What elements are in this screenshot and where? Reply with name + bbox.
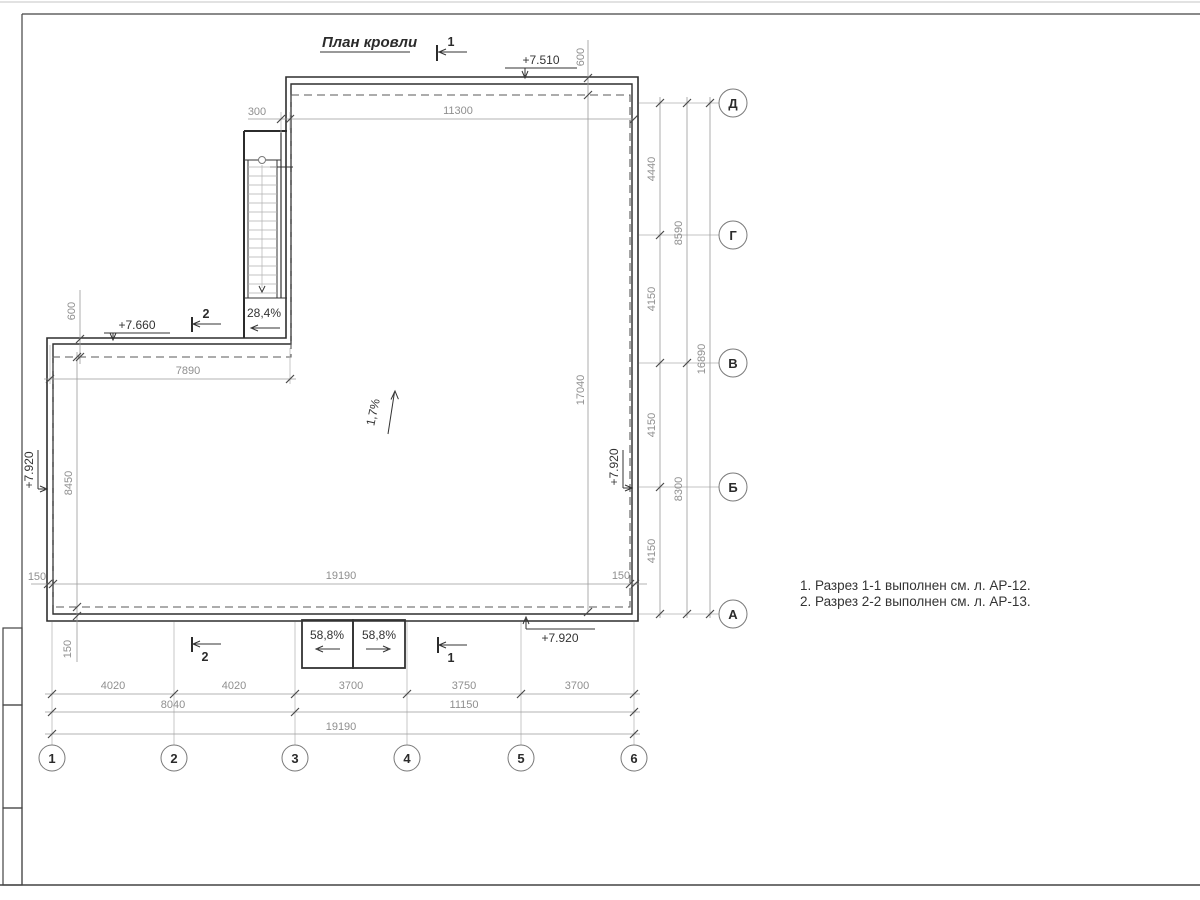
canopy: 58,8% 58,8%: [302, 620, 405, 668]
axis-label-b: Б: [728, 480, 737, 495]
note-line-1: 1. Разрез 1-1 выполнен см. л. АР-12.: [800, 578, 1031, 593]
dim-150-right: 150: [612, 570, 630, 582]
elevation-right: +7.920: [607, 448, 621, 485]
dim-17040: 17040: [575, 375, 587, 406]
elevation-right-leader: [623, 450, 630, 488]
axis-label-d: Д: [728, 96, 738, 111]
dim-600-top: 600: [575, 48, 587, 66]
dim-11300: 11300: [443, 105, 473, 117]
dim-8450: 8450: [63, 471, 75, 495]
roof-slope: 1,7%: [363, 391, 398, 434]
axis-label-6: 6: [630, 751, 637, 766]
page-title: План кровли: [322, 34, 417, 51]
roof-slope-label: 1,7%: [363, 397, 382, 427]
axis-label-2: 2: [170, 751, 177, 766]
axis-label-v: В: [728, 356, 737, 371]
elevation-bottom: +7.920: [541, 631, 578, 645]
elevation-top: +7.510: [522, 53, 559, 67]
section-2-bottom-label: 2: [202, 650, 209, 664]
drawing-sheet: План кровли 28,4% 58,8% 58,8% 1,7%: [0, 0, 1200, 900]
note-line-2: 2. Разрез 2-2 выполнен см. л. АР-13.: [800, 594, 1031, 609]
dim-150-left-bottom: 150: [62, 640, 74, 658]
dim-600-wing: 600: [66, 302, 78, 320]
ladder-post: [259, 157, 266, 164]
drawing-title: План кровли: [320, 34, 417, 52]
dim-11150: 11150: [450, 699, 479, 711]
dim-3750: 3750: [452, 680, 476, 692]
canopy-left-slope: 58,8%: [310, 628, 344, 642]
axis-label-3: 3: [291, 751, 298, 766]
dim-4150-gv: 4150: [646, 287, 658, 311]
up-arrow-icon: [391, 391, 398, 400]
section-1-top-label: 1: [448, 35, 455, 49]
dim-19190-bottom: 19190: [326, 721, 357, 733]
building-outline: [47, 77, 638, 621]
binding-boxes: [3, 628, 22, 885]
binding-box: [3, 628, 22, 705]
dim-4020-b: 4020: [222, 680, 246, 692]
dim-3700-b: 3700: [565, 680, 589, 692]
axis-label-5: 5: [517, 751, 524, 766]
axis-label-4: 4: [403, 751, 411, 766]
section-2-wing-label: 2: [203, 307, 210, 321]
dim-3700-a: 3700: [339, 680, 363, 692]
roof-plan-drawing: План кровли 28,4% 58,8% 58,8% 1,7%: [0, 0, 1200, 900]
roof-edge-dashed: [53, 95, 630, 607]
dim-4440: 4440: [646, 157, 658, 181]
binding-box: [3, 808, 22, 885]
elevation-left: +7.920: [22, 451, 36, 488]
elevation-wing: +7.660: [118, 318, 155, 332]
binding-box: [3, 705, 22, 808]
dim-150-left: 150: [28, 571, 46, 583]
elevation-marks: +7.510 +7.660 +7.920 +7.920 +7.920: [22, 53, 632, 645]
dim-4150-ba: 4150: [646, 539, 658, 563]
dim-300: 300: [248, 106, 266, 118]
dim-8040: 8040: [161, 699, 185, 711]
notes-block: 1. Разрез 1-1 выполнен см. л. АР-12. 2. …: [800, 578, 1031, 609]
ladder-rails: [248, 160, 277, 298]
axis-label-g: Г: [729, 228, 737, 243]
dim-8300: 8300: [673, 477, 685, 501]
dim-19190-inner: 19190: [326, 570, 357, 582]
dim-4020-a: 4020: [101, 680, 125, 692]
dim-4150-vb: 4150: [646, 413, 658, 437]
dim-8590: 8590: [673, 221, 685, 245]
axis-label-1: 1: [48, 751, 55, 766]
elevation-top-leader: [505, 68, 577, 76]
dim-7890: 7890: [176, 365, 200, 377]
section-1-bottom-label: 1: [448, 651, 455, 665]
canopy-right-slope: 58,8%: [362, 628, 396, 642]
axis-circles-right: Д Г В Б А: [719, 89, 747, 628]
ladder-rungs: [248, 167, 277, 293]
axis-circles-bottom: 1 2 3 4 5 6: [39, 745, 647, 771]
axis-label-a: А: [728, 607, 738, 622]
elevation-left-leader: [38, 450, 45, 489]
dim-16890: 16890: [696, 344, 708, 375]
stair-slope-label: 28,4%: [247, 306, 281, 320]
wall-outer: [47, 77, 638, 621]
wall-inner: [53, 84, 632, 614]
